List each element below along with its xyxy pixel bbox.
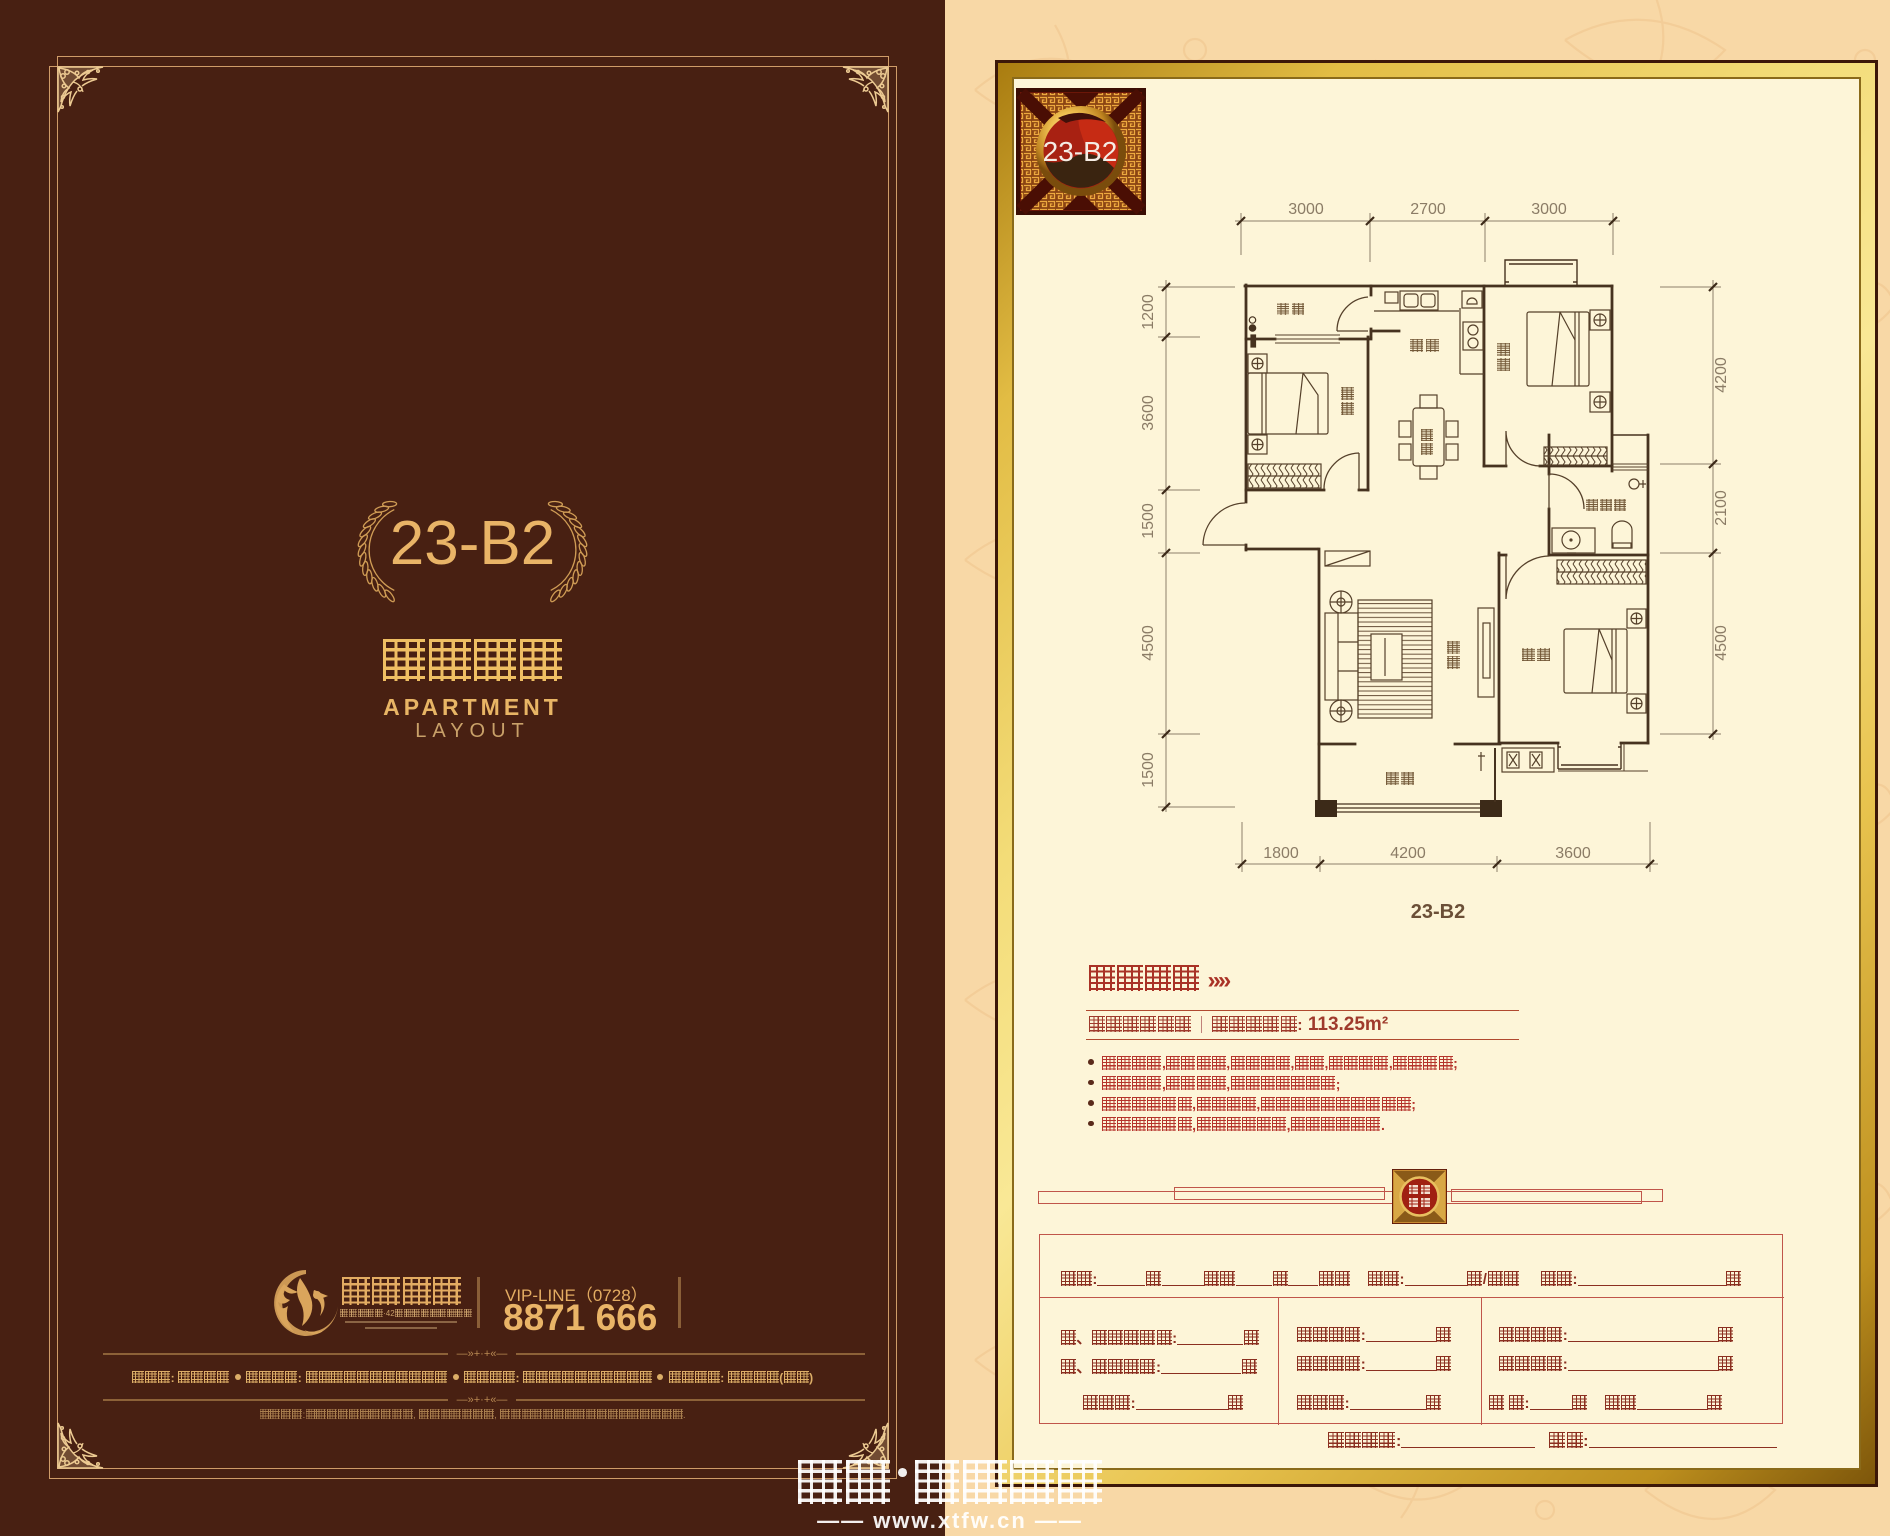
- svg-text:3000: 3000: [1288, 201, 1324, 218]
- svg-text:4200: 4200: [1713, 357, 1730, 393]
- svg-text:4200: 4200: [1390, 845, 1426, 862]
- svg-text:2700: 2700: [1410, 201, 1446, 218]
- svg-text:1500: 1500: [1140, 752, 1157, 788]
- svg-text:1200: 1200: [1140, 294, 1157, 330]
- svg-text:4500: 4500: [1713, 625, 1730, 661]
- svg-text:23-B2: 23-B2: [1043, 136, 1118, 167]
- svg-text:2100: 2100: [1713, 490, 1730, 526]
- svg-text:4500: 4500: [1140, 625, 1157, 661]
- svg-text:1800: 1800: [1263, 845, 1299, 862]
- svg-text:3000: 3000: [1531, 201, 1567, 218]
- svg-text:1500: 1500: [1140, 503, 1157, 539]
- svg-text:3600: 3600: [1140, 395, 1157, 431]
- svg-text:3600: 3600: [1555, 845, 1591, 862]
